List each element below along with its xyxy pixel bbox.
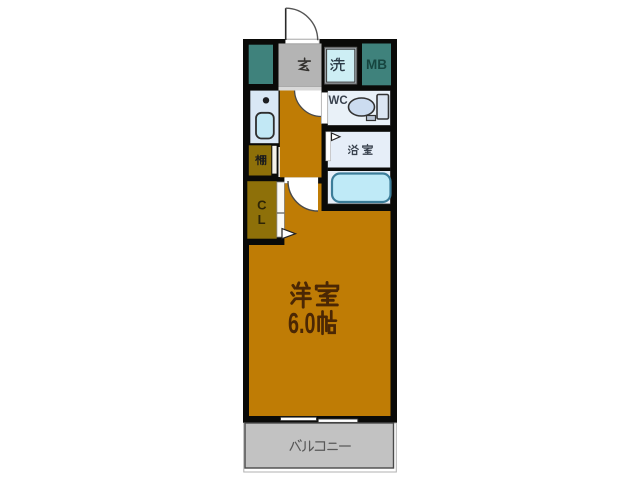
svg-text:L: L (258, 212, 266, 227)
svg-text:C: C (257, 198, 267, 213)
svg-text:6.0: 6.0 (288, 308, 316, 340)
svg-text:WC: WC (329, 95, 348, 107)
svg-text:MB: MB (366, 57, 387, 72)
